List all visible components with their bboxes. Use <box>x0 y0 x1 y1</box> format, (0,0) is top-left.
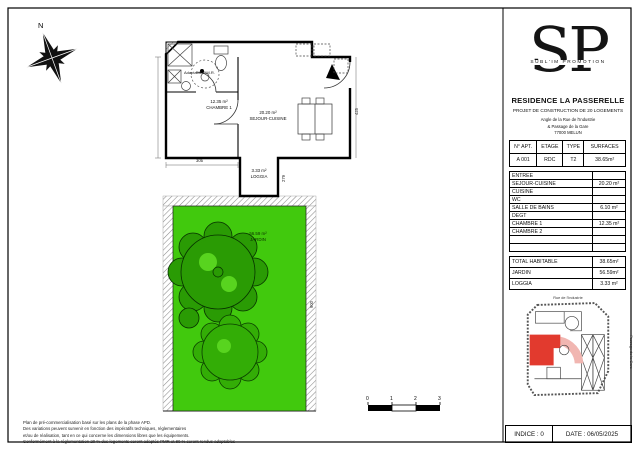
north-label: N <box>38 21 43 30</box>
table-row <box>510 244 626 252</box>
table-row: SEJOUR-CUISINE20.20 m² <box>510 180 626 188</box>
project-subtitle: PROJET DE CONSTRUCTION DE 20 LOGEMENTS <box>504 108 632 113</box>
table-row: LOGGIA3.33 m² <box>510 279 626 290</box>
room-name-text: JARDIN <box>237 237 279 243</box>
table-row: CHAMBRE 112.35 m² <box>510 220 626 228</box>
dim-label: 900 <box>309 301 314 308</box>
room-area <box>593 244 626 252</box>
title-block: SP SUBL'IM PROMOTION RESIDENCE LA PASSER… <box>504 8 632 443</box>
room-label-chambre1: 12.35 m² CHAMBRE 1 <box>194 99 244 111</box>
address-line: 77000 MELUN <box>504 130 632 137</box>
pmr-note: Adaptable P.M.R. <box>184 70 215 75</box>
room-label <box>510 244 593 252</box>
table-row: TOTAL HABITABLE38.65m² <box>510 257 626 268</box>
room-area <box>593 212 626 220</box>
total-value: 56.59m² <box>593 268 626 279</box>
scale-tick-label: 3 <box>438 396 441 402</box>
table-row: CUISINE <box>510 188 626 196</box>
room-name-text: CHAMBRE 1 <box>194 105 244 111</box>
project-address: Angle de la Rue de l'Industrie & Passage… <box>504 117 632 137</box>
apt-type: T2 <box>563 154 584 167</box>
table-header-row: N° APT. ETAGE TYPE SURFACES <box>510 141 626 154</box>
dim-label: 305 <box>196 158 203 163</box>
room-label: WC <box>510 196 593 204</box>
room-area: 20.20 m² <box>593 180 626 188</box>
room-area <box>593 236 626 244</box>
total-value: 3.33 m² <box>593 279 626 290</box>
room-area <box>593 196 626 204</box>
room-label-loggia: 3.33 m² LOGGIA <box>243 168 275 180</box>
date-cell: DATE : 06/05/2025 <box>553 426 631 442</box>
room-label: CUISINE <box>510 188 593 196</box>
apt-number: A 001 <box>510 154 537 167</box>
site-map-drawing <box>522 300 614 400</box>
room-label: SEJOUR-CUISINE <box>510 180 593 188</box>
total-label: TOTAL HABITABLE <box>510 257 593 268</box>
apt-floor: RDC <box>537 154 563 167</box>
table-row: WC <box>510 196 626 204</box>
logo-monogram: SP <box>504 8 632 92</box>
disclaimer-line: Conformément à la réglementation 20 % de… <box>23 439 235 445</box>
table-row: SALLE DE BAINS6.10 m² <box>510 204 626 212</box>
room-label: CHAMBRE 1 <box>510 220 593 228</box>
total-label: LOGGIA <box>510 279 593 290</box>
table-row: CHAMBRE 2 <box>510 228 626 236</box>
room-area <box>593 228 626 236</box>
room-label <box>510 236 593 244</box>
project-info: RESIDENCE LA PASSERELLE PROJET DE CONSTR… <box>504 96 632 137</box>
residence-title: RESIDENCE LA PASSERELLE <box>504 96 632 105</box>
col-header: ETAGE <box>537 141 563 154</box>
disclaimer-block: Plan de pré-commercialisation basé sur l… <box>23 420 235 446</box>
total-label: JARDIN <box>510 268 593 279</box>
scale-bar <box>368 402 440 411</box>
scale-tick-label: 0 <box>366 396 369 402</box>
totals-table: TOTAL HABITABLE38.65m² JARDIN56.59m² LOG… <box>509 256 626 290</box>
room-name-text: LOGGIA <box>243 174 275 180</box>
dim-label: 425 <box>354 108 359 115</box>
scale-tick-label: 1 <box>390 396 393 402</box>
street-label-right: Passage de la Gare <box>629 335 633 369</box>
apt-surface: 38.65m² <box>584 154 626 167</box>
room-label: SALLE DE BAINS <box>510 204 593 212</box>
tree-lower <box>193 315 267 389</box>
room-area <box>593 172 626 180</box>
room-area <box>593 188 626 196</box>
room-area: 6.10 m² <box>593 204 626 212</box>
room-label-jardin: 56.59 m² JARDIN <box>237 231 279 243</box>
room-label: DEGT <box>510 212 593 220</box>
room-label: ENTREE <box>510 172 593 180</box>
room-label: CHAMBRE 2 <box>510 228 593 236</box>
table-row: JARDIN56.59m² <box>510 268 626 279</box>
total-value: 38.65m² <box>593 257 626 268</box>
table-row: DEGT <box>510 212 626 220</box>
col-header: TYPE <box>563 141 584 154</box>
sublim-promotion-logo: SP SUBL'IM PROMOTION <box>504 8 632 94</box>
room-name-text: SEJOUR-CUISINE <box>242 116 294 122</box>
col-header: N° APT. <box>510 141 537 154</box>
shrub-small <box>179 308 199 328</box>
rooms-table: ENTREE SEJOUR-CUISINE20.20 m² CUISINE WC… <box>509 171 626 252</box>
dim-label: 279 <box>281 175 286 182</box>
table-row <box>510 236 626 244</box>
room-label-sejour: 20.20 m² SEJOUR-CUISINE <box>242 110 294 122</box>
indice-cell: INDICE : 0 <box>506 426 553 442</box>
col-header: SURFACES <box>584 141 626 154</box>
scale-tick-label: 2 <box>414 396 417 402</box>
site-location-map: Rue de l'Industrie <box>504 296 632 405</box>
table-row: ENTREE <box>510 172 626 180</box>
logo-subtitle: SUBL'IM PROMOTION <box>528 60 607 65</box>
compass-rose-icon <box>17 23 86 92</box>
table-row: A 001 RDC T2 38.65m² <box>510 154 626 167</box>
revision-bar: INDICE : 0 DATE : 06/05/2025 <box>505 425 632 443</box>
apartment-summary-table: N° APT. ETAGE TYPE SURFACES A 001 RDC T2… <box>509 140 626 167</box>
plan-sheet: N Adaptable P.M.R. 12.35 m² CHAMBRE 1 20… <box>0 0 640 451</box>
room-area: 12.35 m² <box>593 220 626 228</box>
